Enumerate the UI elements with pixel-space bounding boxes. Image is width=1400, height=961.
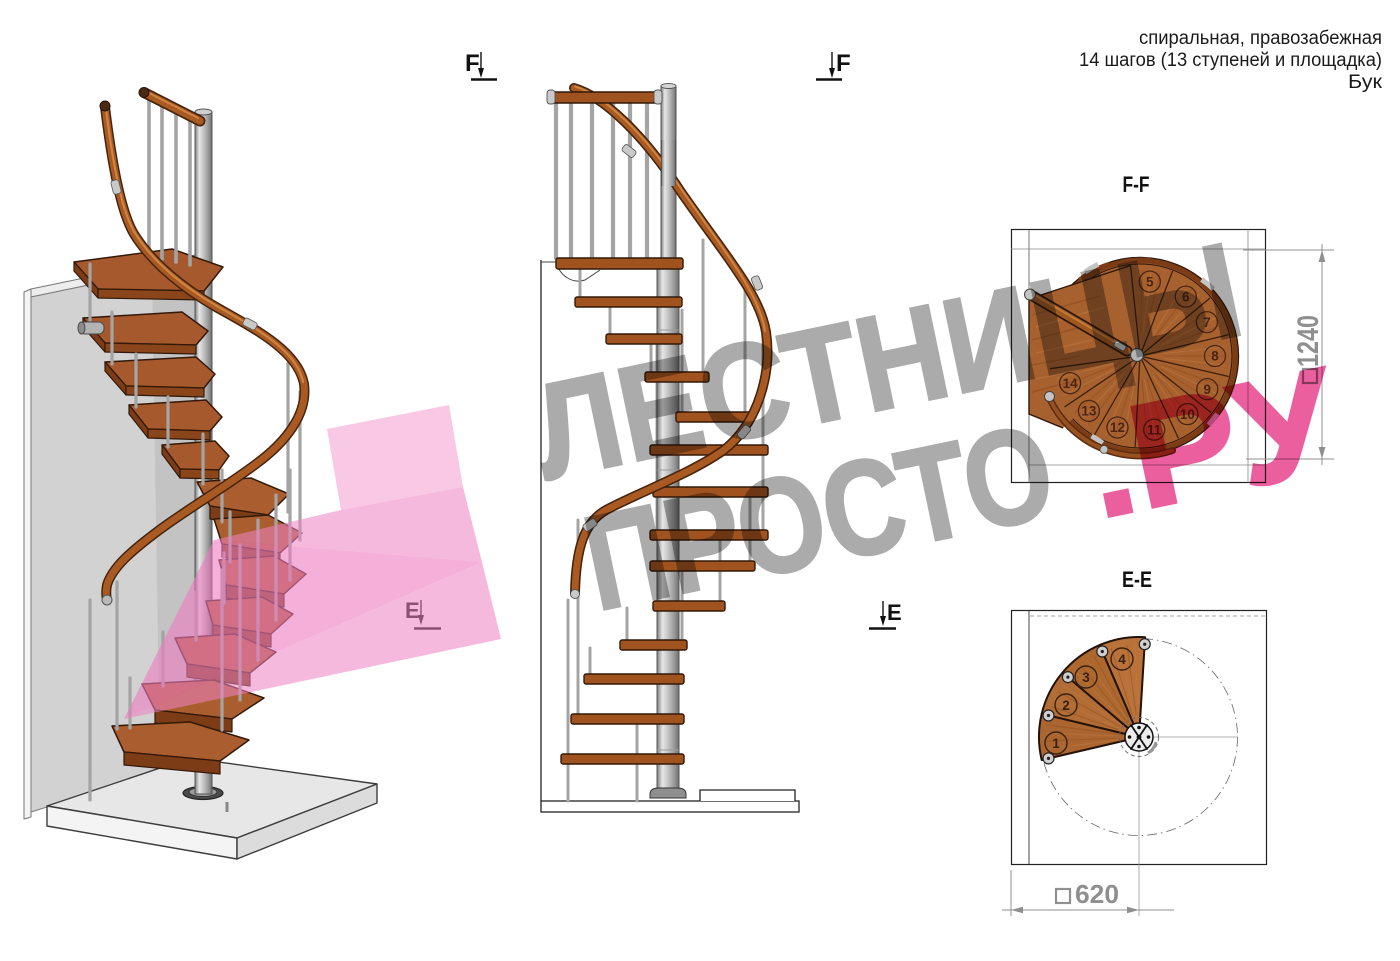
svg-text:E-E: E-E <box>1122 567 1152 592</box>
svg-text:F-F: F-F <box>1123 172 1150 197</box>
svg-text:14 шагов (13 ступеней и площад: 14 шагов (13 ступеней и площадка) <box>1079 50 1382 71</box>
svg-text:3: 3 <box>1082 670 1090 685</box>
svg-text:E: E <box>887 600 902 625</box>
svg-text:4: 4 <box>1118 652 1126 667</box>
svg-text:1: 1 <box>1052 736 1060 751</box>
svg-text:620: 620 <box>1075 879 1119 909</box>
svg-text:F: F <box>836 50 851 77</box>
svg-text:Бук: Бук <box>1348 72 1383 93</box>
svg-text:2: 2 <box>1062 698 1070 713</box>
svg-text:спиральная, правозабежная: спиральная, правозабежная <box>1139 28 1382 49</box>
svg-text:F: F <box>465 50 480 77</box>
